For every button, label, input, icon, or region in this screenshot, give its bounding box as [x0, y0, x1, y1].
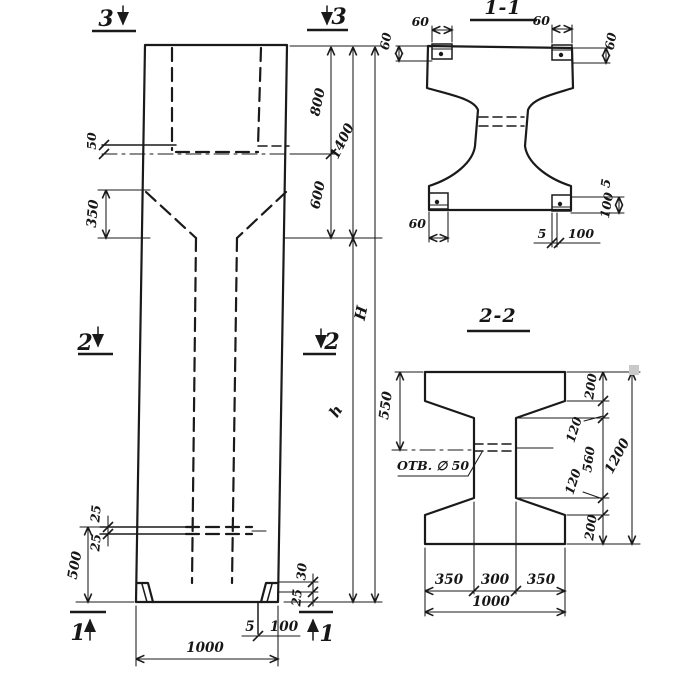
plate-bottom-left — [429, 193, 448, 209]
dim-h-label: h — [325, 402, 346, 421]
plate-bottom-right — [552, 195, 571, 211]
s11-r5-label: 5 — [597, 178, 613, 189]
s11-dim-bottom-left-60: 60 — [409, 212, 448, 242]
dim-100-label: 100 — [270, 619, 299, 635]
s22-560-label: 560 — [579, 445, 598, 473]
s11-tr60-label: 60 — [533, 13, 551, 28]
s22-350l-label: 350 — [435, 572, 464, 588]
dim-5-label: 5 — [245, 619, 254, 635]
hole-level-lines — [100, 527, 266, 534]
section-1-1-title-label: 1-1 — [484, 0, 521, 19]
marker-3-left-label: 3 — [98, 6, 113, 32]
s11-tl60-label: 60 — [412, 14, 430, 29]
base-corbel-left — [137, 583, 153, 602]
dimension-350: 350 — [84, 190, 106, 238]
scan-artifact — [629, 365, 639, 375]
marker-2-left-label: 2 — [76, 330, 92, 356]
section-marker-3-right: 3 — [307, 4, 348, 30]
section-2-2-view: 2-2 ОТВ. ∅ 50 550 — [376, 305, 640, 616]
s22-120b-label: 120 — [562, 467, 584, 497]
dimension-chain-800-600: 800 600 — [307, 47, 336, 238]
s22-dim-550: 550 — [376, 372, 423, 450]
s11-dim-bottom-5-100: 5 100 — [534, 213, 600, 248]
dim-25a-label: 25 — [87, 504, 104, 524]
section-1-1-title: 1-1 — [470, 0, 537, 20]
s11-bl60-label: 60 — [409, 216, 427, 231]
section-2-2-hole — [392, 444, 553, 451]
dimension-1400: 1400 — [327, 47, 358, 238]
hidden-lines — [146, 48, 289, 583]
s11-dim-top-right-60: 60 — [533, 13, 572, 43]
dim-H-label: H — [351, 303, 372, 322]
section-1-1-view: 1-1 — [377, 0, 624, 248]
s22-200t-label: 200 — [581, 372, 600, 401]
dim-600-label: 600 — [307, 179, 329, 210]
s11-dim-top-left-60: 60 — [412, 14, 452, 42]
section-marker-1-right: 1 — [299, 612, 335, 647]
marker-1-left-label: 1 — [70, 620, 85, 646]
marker-1-right-label: 1 — [319, 621, 334, 647]
s22-550-label: 550 — [376, 390, 396, 421]
section-marker-1-left: 1 — [70, 612, 106, 646]
dim-350-label: 350 — [84, 198, 102, 228]
dimension-h: h — [325, 238, 353, 602]
s11-b100-label: 100 — [568, 226, 594, 241]
dimension-500: 500 — [65, 527, 88, 602]
s11-dim-top-left-60v: 60 — [377, 31, 432, 61]
s22-120t-label: 120 — [563, 415, 585, 445]
dimension-30-25: 30 25 — [288, 562, 318, 608]
s22-1200-label: 1200 — [602, 435, 634, 476]
s11-r100-label: 100 — [597, 191, 616, 220]
section-1-1-hole — [479, 117, 524, 126]
technical-drawing: 50 350 800 600 1400 h H 500 — [0, 0, 700, 700]
s11-dim-right-5-100: 5 100 — [571, 178, 624, 220]
section-2-2-title: 2-2 — [467, 305, 530, 331]
section-2-2-title-label: 2-2 — [478, 305, 516, 327]
dim-30-label: 30 — [293, 562, 309, 581]
marker-2-right-label: 2 — [323, 329, 339, 355]
extension-lines — [76, 46, 382, 602]
s22-1000-label: 1000 — [472, 594, 510, 610]
dim-25c-label: 25 — [288, 588, 305, 608]
dim-800-label: 800 — [307, 86, 329, 117]
main-elevation-view: 50 350 800 600 1400 h H 500 — [65, 4, 382, 666]
s22-300-label: 300 — [481, 572, 510, 588]
section-marker-2-right: 2 — [303, 329, 340, 355]
dim-50-label: 50 — [84, 132, 99, 150]
dimension-5-100-bottom: 5 100 — [242, 602, 300, 641]
marker-3-right-label: 3 — [331, 4, 346, 30]
s22-200b-label: 200 — [581, 513, 600, 542]
s22-350r-label: 350 — [527, 572, 556, 588]
dim-25b-label: 25 — [87, 533, 104, 553]
section-marker-2-left: 2 — [76, 327, 113, 356]
hole-callout-label: ОТВ. ∅ 50 — [397, 458, 469, 473]
s11-b5-label: 5 — [538, 226, 547, 241]
s11-trv60-label: 60 — [602, 31, 620, 51]
column-outline — [136, 45, 287, 602]
s22-bottom-dims: 350 300 350 1000 — [425, 502, 565, 616]
section-marker-3-left: 3 — [92, 6, 136, 32]
hole-callout: ОТВ. ∅ 50 — [397, 452, 482, 476]
dim-1000-label: 1000 — [186, 640, 224, 656]
section-1-1-outline — [427, 46, 573, 210]
s11-tlv60-label: 60 — [377, 31, 395, 51]
drawing-canvas: 50 350 800 600 1400 h H 500 — [0, 0, 700, 700]
base-corbel-right — [261, 583, 277, 602]
dim-500-label: 500 — [65, 549, 86, 580]
s11-dim-top-right-60v: 60 — [573, 31, 620, 63]
dimension-25-25: 25 25 — [87, 504, 113, 553]
